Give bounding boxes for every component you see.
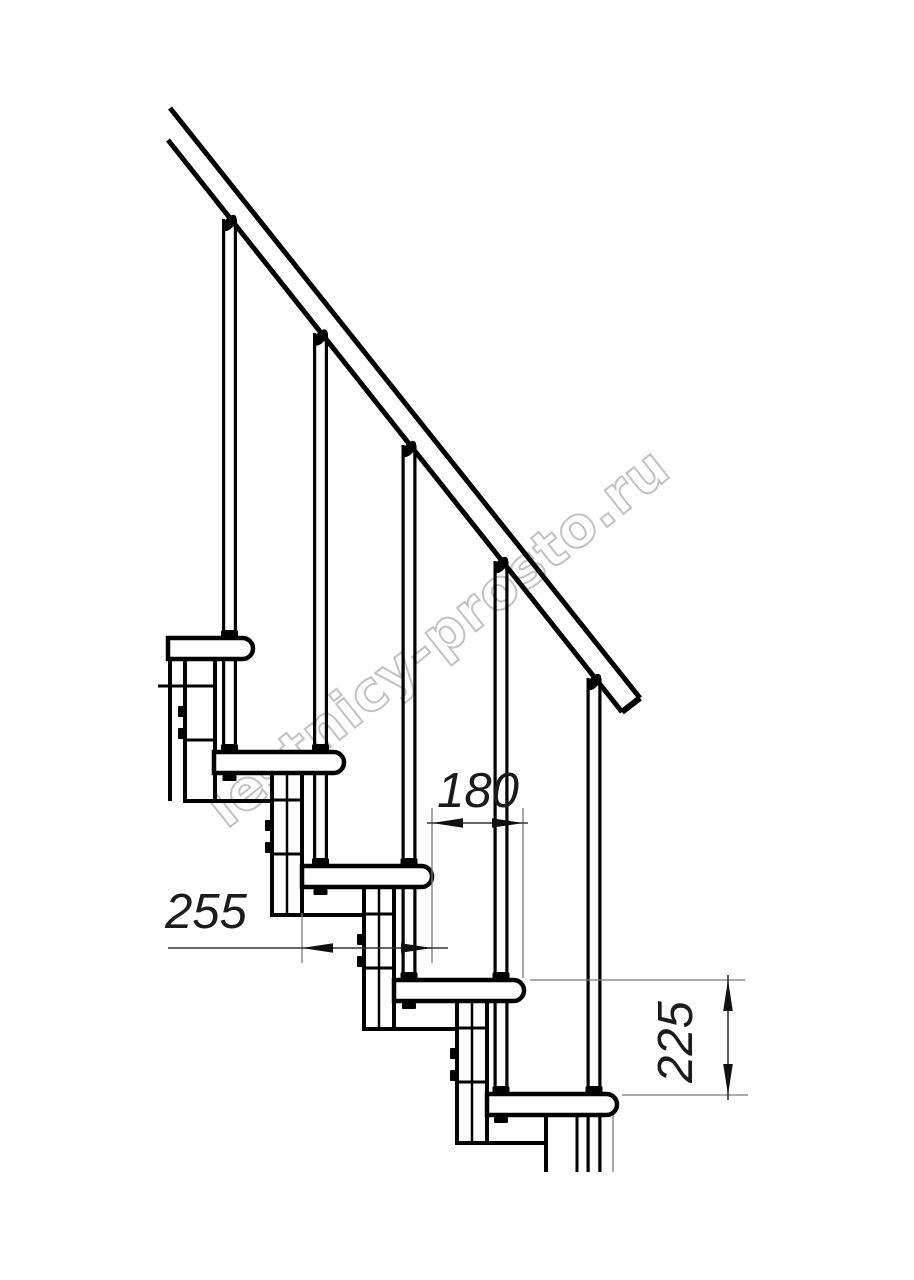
baluster-1 [224, 219, 236, 760]
bolt [178, 706, 187, 717]
arrowhead [432, 818, 463, 828]
tread-connector [401, 972, 418, 980]
dim-label-225: 225 [649, 1000, 703, 1084]
dimension-255: 255 [164, 885, 448, 963]
tread-connector [493, 972, 510, 980]
tread-connector [312, 858, 329, 866]
tread-connector [586, 1086, 603, 1094]
baluster-4 [495, 561, 507, 1098]
dimension-225: 225 [530, 975, 748, 1172]
arrowhead [723, 1064, 733, 1095]
bolt [265, 820, 274, 831]
dim-label-180: 180 [437, 764, 519, 818]
dim-label-255: 255 [164, 885, 248, 939]
dimension-180: 180 [427, 764, 528, 978]
tread-connector [401, 858, 418, 866]
tread-bolt [314, 889, 328, 895]
bolt [178, 728, 187, 739]
tread-connector [221, 744, 238, 752]
tread-bolt [223, 775, 237, 781]
tread-3 [302, 866, 432, 887]
tread-5 [487, 1094, 617, 1115]
bolt [265, 842, 274, 853]
bolt [450, 1070, 459, 1081]
drawing-canvas: lestnicy-prosto.ru [0, 0, 914, 1280]
tread-connector [493, 1086, 510, 1094]
tread-connector [312, 744, 329, 752]
tread-bolt [494, 1117, 508, 1123]
arrowhead [302, 943, 333, 953]
tread-bolt [402, 1003, 416, 1009]
tread-1 [168, 638, 253, 659]
tread-2 [214, 752, 344, 773]
tread-4 [394, 980, 524, 1001]
bolt [357, 934, 366, 945]
arrowhead [723, 980, 733, 1011]
baluster-3 [403, 445, 415, 984]
column-5 [546, 1115, 577, 1172]
baluster-2 [315, 333, 327, 870]
tread-connector [221, 630, 238, 638]
stair-drawing: lestnicy-prosto.ru [0, 0, 914, 1280]
handrail-end-cap [622, 698, 640, 712]
bolt [357, 956, 366, 967]
bolt [450, 1048, 459, 1059]
